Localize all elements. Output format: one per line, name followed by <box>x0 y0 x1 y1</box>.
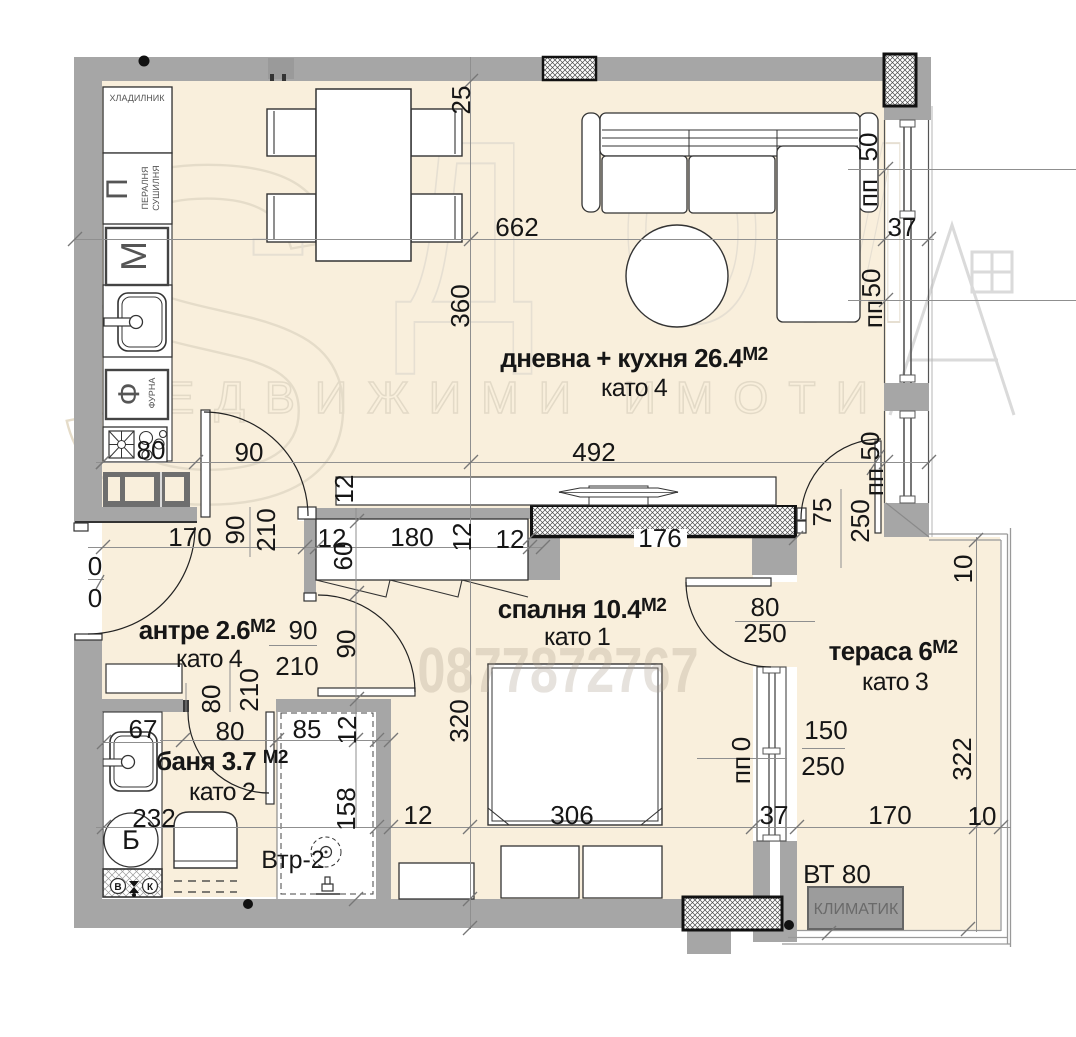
svg-text:250: 250 <box>801 751 844 781</box>
svg-text:Втр-2: Втр-2 <box>261 846 324 874</box>
svg-text:като 1: като 1 <box>544 623 610 651</box>
svg-text:спалня 10.4М2: спалня 10.4М2 <box>498 594 666 624</box>
svg-text:85: 85 <box>293 714 322 744</box>
svg-text:дневна + кухня 26.4М2: дневна + кухня 26.4М2 <box>500 343 767 373</box>
svg-text:като 4: като 4 <box>601 374 668 402</box>
svg-text:0: 0 <box>88 583 102 613</box>
svg-text:90: 90 <box>289 615 318 645</box>
svg-text:232: 232 <box>132 803 175 833</box>
svg-text:170: 170 <box>168 522 211 552</box>
svg-text:пп: пп <box>858 300 888 328</box>
svg-text:210: 210 <box>251 508 281 551</box>
svg-text:пп: пп <box>853 179 883 207</box>
svg-text:К: К <box>147 882 154 893</box>
svg-text:37: 37 <box>888 212 917 242</box>
svg-text:СУШИЛНЯ: СУШИЛНЯ <box>151 165 161 211</box>
svg-text:12: 12 <box>329 475 359 504</box>
svg-text:пп: пп <box>859 468 889 496</box>
svg-text:306: 306 <box>550 800 593 830</box>
svg-text:ПЕРАЛНЯ: ПЕРАЛНЯ <box>140 167 150 210</box>
svg-text:75: 75 <box>807 498 837 527</box>
svg-text:158: 158 <box>331 787 361 830</box>
svg-text:180: 180 <box>390 522 433 552</box>
svg-text:250: 250 <box>743 618 786 648</box>
svg-text:М: М <box>113 241 154 271</box>
svg-text:0: 0 <box>726 737 756 751</box>
svg-text:662: 662 <box>495 212 538 242</box>
svg-text:50: 50 <box>856 269 886 298</box>
svg-text:37: 37 <box>760 800 789 830</box>
svg-text:10: 10 <box>968 801 997 831</box>
svg-text:пп: пп <box>726 756 756 784</box>
svg-text:25: 25 <box>446 86 476 115</box>
svg-text:ФУРНА: ФУРНА <box>147 378 157 409</box>
svg-text:12: 12 <box>404 800 433 830</box>
svg-text:80: 80 <box>216 716 245 746</box>
svg-text:170: 170 <box>868 800 911 830</box>
svg-text:50: 50 <box>853 133 883 162</box>
svg-text:П: П <box>101 178 134 200</box>
svg-text:В: В <box>114 882 121 893</box>
svg-text:492: 492 <box>572 437 615 467</box>
svg-text:67: 67 <box>129 714 158 744</box>
svg-text:322: 322 <box>947 737 977 780</box>
svg-text:10: 10 <box>948 555 978 584</box>
svg-text:210: 210 <box>234 668 264 711</box>
svg-text:12: 12 <box>496 524 525 554</box>
svg-text:12: 12 <box>332 716 362 745</box>
svg-text:250: 250 <box>845 499 875 542</box>
svg-text:КЛИМАТИК: КЛИМАТИК <box>814 901 899 918</box>
svg-text:като 2: като 2 <box>189 778 255 806</box>
svg-text:90: 90 <box>331 630 361 659</box>
svg-text:ХЛАДИЛНИК: ХЛАДИЛНИК <box>110 93 166 103</box>
svg-text:320: 320 <box>444 699 474 742</box>
svg-text:50: 50 <box>855 432 885 461</box>
svg-text:60: 60 <box>328 542 358 571</box>
svg-text:Ф: Ф <box>113 383 146 406</box>
svg-text:90: 90 <box>235 437 264 467</box>
svg-text:0: 0 <box>88 551 102 581</box>
svg-text:360: 360 <box>445 284 475 327</box>
svg-text:176: 176 <box>638 523 681 553</box>
svg-text:като 3: като 3 <box>862 668 928 696</box>
svg-text:90: 90 <box>220 516 250 545</box>
svg-text:80: 80 <box>196 685 226 714</box>
svg-text:150: 150 <box>804 715 847 745</box>
svg-text:ВТ 80: ВТ 80 <box>803 859 871 889</box>
svg-text:80: 80 <box>137 435 166 465</box>
svg-text:12: 12 <box>447 523 477 552</box>
svg-text:като 4: като 4 <box>176 645 243 673</box>
svg-text:210: 210 <box>275 651 318 681</box>
